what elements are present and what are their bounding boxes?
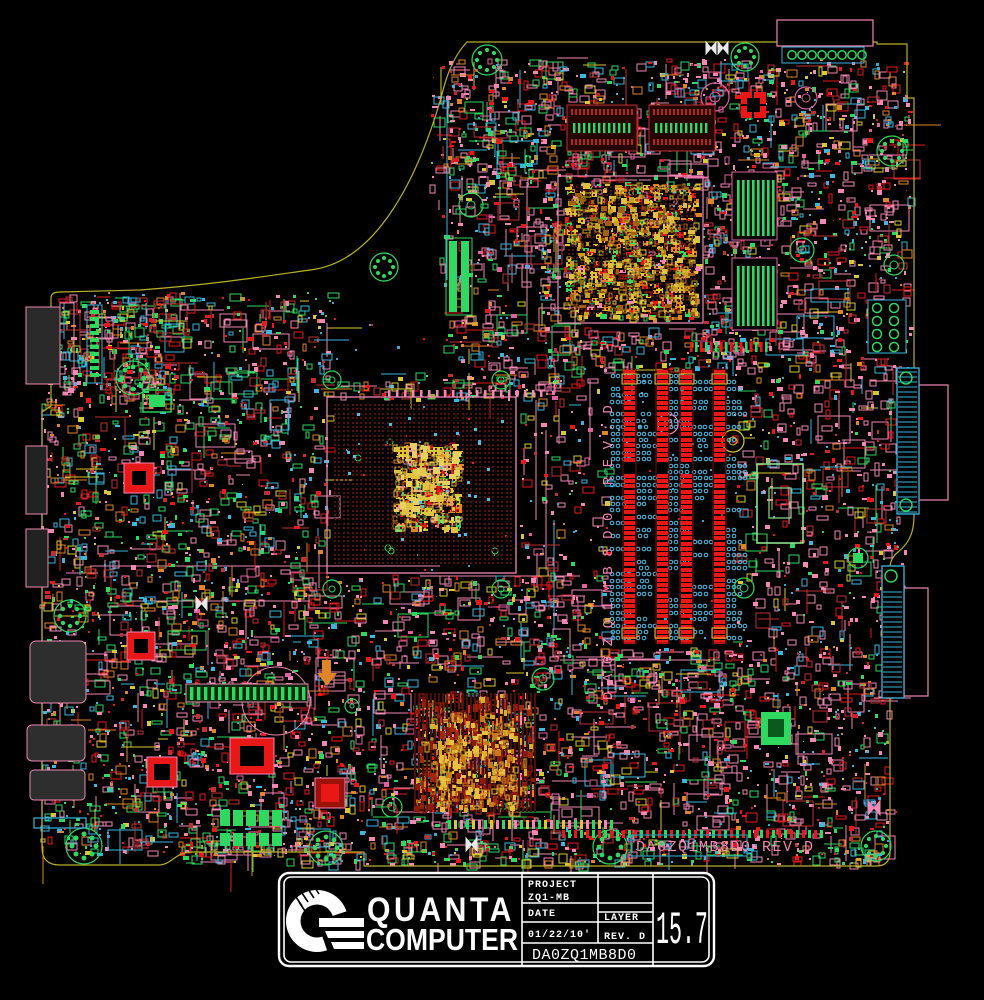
svg-text:ZQ1-MB: ZQ1-MB <box>528 893 570 904</box>
svg-text:LAYER: LAYER <box>604 913 639 924</box>
svg-text:DA0ZQ1MB8D0: DA0ZQ1MB8D0 <box>532 947 637 964</box>
svg-text:REV. D: REV. D <box>604 932 646 943</box>
svg-text:DATE: DATE <box>528 909 556 920</box>
svg-text:01/22/10': 01/22/10' <box>528 929 591 941</box>
svg-text:COMPUTER: COMPUTER <box>366 922 518 957</box>
svg-text:DA0ZQ1MB8D0 REV:D: DA0ZQ1MB8D0 REV:D <box>636 839 815 856</box>
svg-text:PROJECT: PROJECT <box>528 880 577 891</box>
svg-text:DA0ZQ1MB8D0 REV:D: DA0ZQ1MB8D0 REV:D <box>601 396 617 700</box>
svg-text:15.7: 15.7 <box>656 905 708 957</box>
